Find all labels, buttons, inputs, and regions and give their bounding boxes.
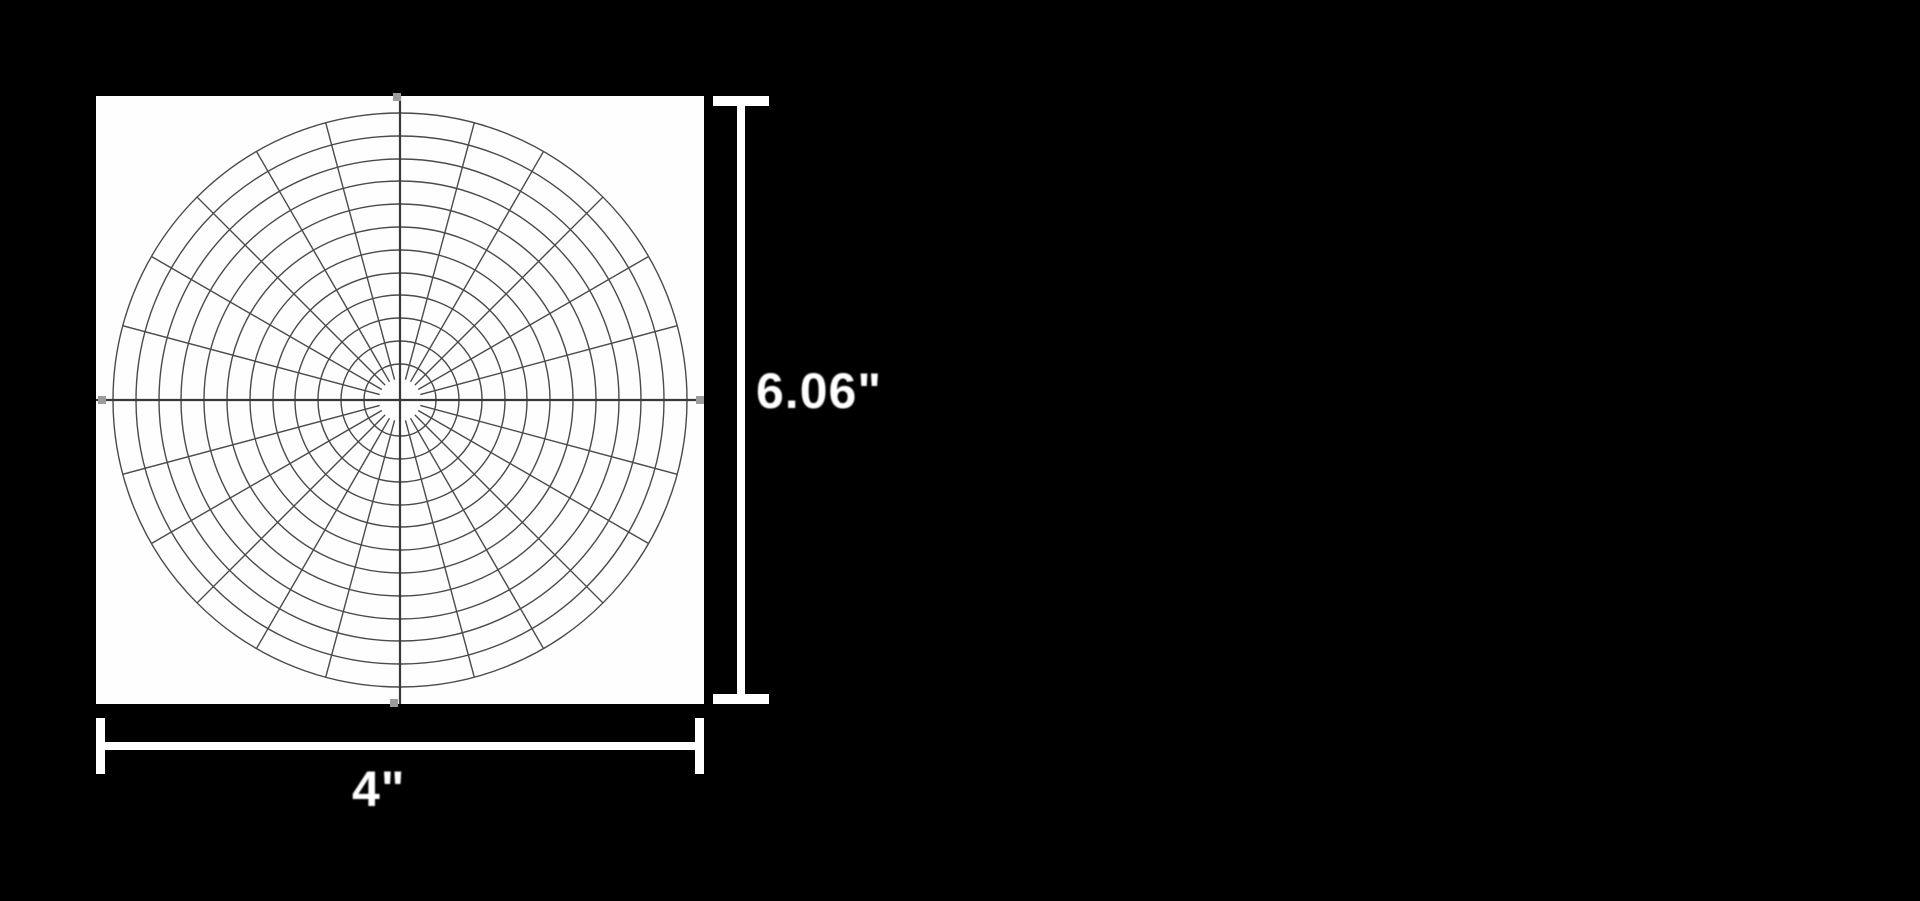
canvas-background: 6.06" 4" xyxy=(0,0,1920,901)
handle-bottom[interactable] xyxy=(390,699,398,707)
handle-right[interactable] xyxy=(696,396,704,404)
polar-grid-svg xyxy=(96,96,704,704)
height-dimension-cap-bottom xyxy=(713,694,769,704)
handle-left[interactable] xyxy=(98,396,106,404)
width-dimension-cap-right xyxy=(695,718,704,774)
width-dimension-cap-left xyxy=(96,718,105,774)
height-dimension-cap-top xyxy=(713,96,769,106)
height-dimension-label: 6.06" xyxy=(756,362,882,420)
polar-grid-paper[interactable] xyxy=(96,96,704,704)
handle-top[interactable] xyxy=(393,93,401,101)
width-dimension-line xyxy=(96,742,704,750)
height-dimension-line xyxy=(737,96,745,704)
width-dimension-label: 4" xyxy=(352,760,406,818)
